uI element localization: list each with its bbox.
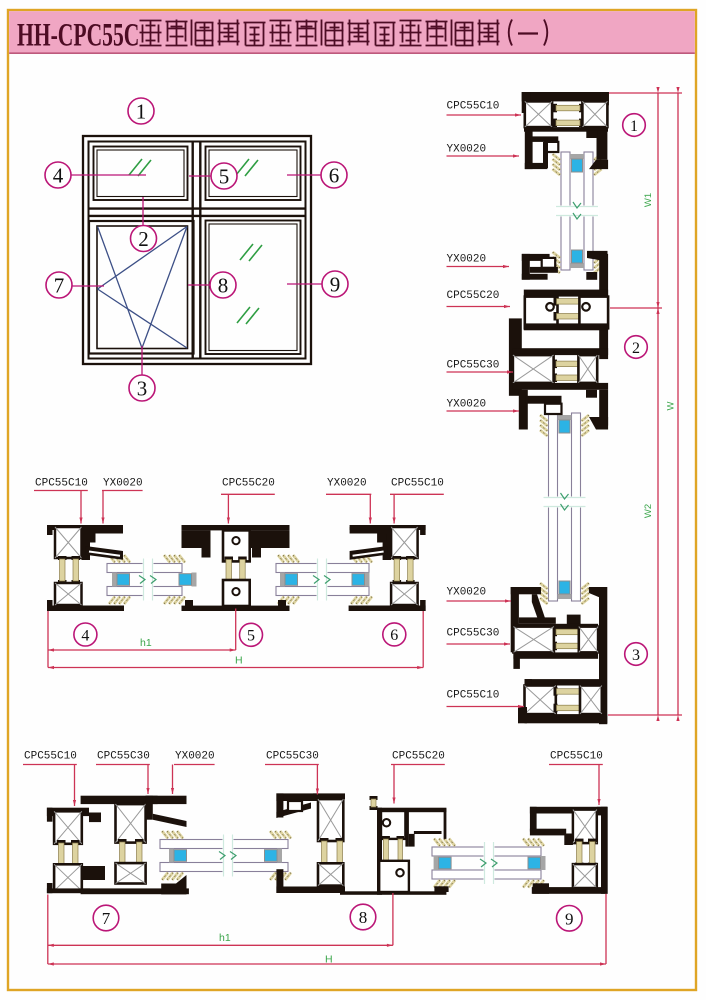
svg-text:8: 8 bbox=[359, 908, 368, 927]
svg-text:CPC55C20: CPC55C20 bbox=[392, 750, 445, 762]
svg-text:3: 3 bbox=[137, 377, 148, 401]
svg-text:YX0020: YX0020 bbox=[447, 253, 487, 265]
svg-text:CPC55C10: CPC55C10 bbox=[447, 689, 500, 701]
svg-text:CPC55C30: CPC55C30 bbox=[97, 750, 150, 762]
svg-text:H: H bbox=[235, 655, 243, 667]
svg-text:YX0020: YX0020 bbox=[103, 477, 143, 489]
svg-text:9: 9 bbox=[565, 909, 574, 928]
svg-text:YX0020: YX0020 bbox=[327, 477, 367, 489]
svg-text:YX0020: YX0020 bbox=[447, 143, 487, 155]
svg-text:CPC55C20: CPC55C20 bbox=[222, 477, 275, 489]
svg-text:CPC55C30: CPC55C30 bbox=[447, 359, 500, 371]
svg-text:3: 3 bbox=[632, 647, 640, 664]
svg-text:5: 5 bbox=[219, 165, 230, 189]
svg-text:CPC55C20: CPC55C20 bbox=[447, 290, 500, 302]
svg-text:5: 5 bbox=[247, 628, 255, 645]
svg-text:YX0020: YX0020 bbox=[447, 398, 487, 410]
svg-text:H: H bbox=[325, 954, 333, 966]
svg-text:CPC55C10: CPC55C10 bbox=[391, 477, 444, 489]
svg-text:CPC55C30: CPC55C30 bbox=[447, 627, 500, 639]
svg-text:2: 2 bbox=[632, 340, 640, 357]
svg-text:CPC55C10: CPC55C10 bbox=[447, 100, 500, 112]
svg-text:CPC55C10: CPC55C10 bbox=[35, 477, 88, 489]
svg-text:4: 4 bbox=[81, 627, 89, 644]
svg-text:YX0020: YX0020 bbox=[447, 586, 487, 598]
svg-text:1: 1 bbox=[136, 100, 147, 124]
svg-text:W2: W2 bbox=[643, 504, 654, 518]
svg-text:W1: W1 bbox=[643, 193, 654, 207]
svg-text:2: 2 bbox=[138, 227, 149, 251]
svg-text:CPC55C30: CPC55C30 bbox=[266, 750, 319, 762]
svg-text:CPC55C10: CPC55C10 bbox=[24, 750, 77, 762]
svg-text:h1: h1 bbox=[140, 637, 152, 649]
svg-text:1: 1 bbox=[630, 118, 638, 135]
svg-text:9: 9 bbox=[330, 273, 341, 297]
svg-text:YX0020: YX0020 bbox=[175, 750, 215, 762]
svg-text:6: 6 bbox=[329, 164, 340, 188]
svg-text:h1: h1 bbox=[219, 932, 231, 944]
svg-text:W: W bbox=[666, 401, 677, 410]
svg-text:7: 7 bbox=[102, 909, 111, 928]
svg-text:CPC55C10: CPC55C10 bbox=[550, 750, 603, 762]
svg-text:8: 8 bbox=[218, 274, 229, 298]
svg-text:7: 7 bbox=[54, 274, 65, 298]
svg-text:6: 6 bbox=[390, 627, 398, 644]
svg-text:HH-CPC55C: HH-CPC55C bbox=[17, 17, 139, 54]
svg-text:4: 4 bbox=[53, 164, 64, 188]
